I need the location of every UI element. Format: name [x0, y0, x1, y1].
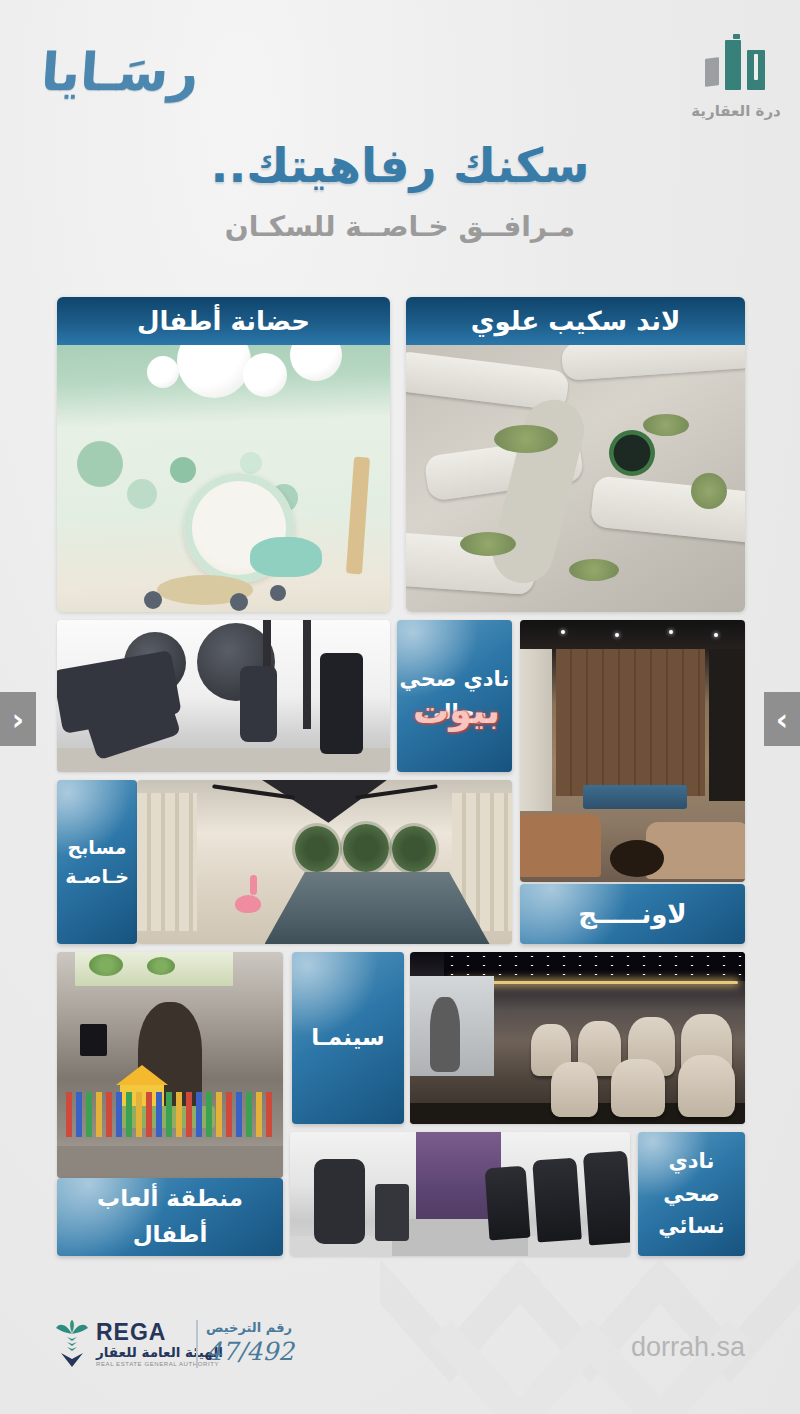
treadmill [532, 1158, 582, 1243]
lounge-label: لاونـــــج [520, 884, 745, 944]
cinema-photo [410, 952, 745, 1124]
treadmill [583, 1150, 630, 1245]
nursery-card: حضانة أطفال [57, 297, 390, 612]
weight-machine [314, 1159, 365, 1243]
pools-label: مسابح خـاصـة [57, 780, 137, 944]
lounge-sofa [520, 814, 601, 877]
dorrah-logo-icon [703, 34, 769, 96]
lounge-photo [520, 620, 745, 882]
page-subtitle: مـرافــق خـاصــة للسكـان [0, 210, 800, 243]
kids-play-photo [57, 952, 283, 1178]
wood-wall [556, 649, 705, 796]
pools-photo [137, 780, 512, 944]
carousel-next-button[interactable]: › [764, 692, 800, 746]
cinema-label: سينمـا [292, 952, 404, 1124]
wall-plant-wreath [295, 826, 339, 872]
weight-machine [240, 666, 277, 742]
recliner-seat [678, 1055, 735, 1117]
trampoline [609, 430, 655, 476]
bayut-watermark: بيوت [340, 690, 500, 738]
chevron-right-icon: › [776, 702, 788, 737]
recliner-seat [551, 1062, 598, 1117]
womens-club-label: نادي صحي نسائي [638, 1132, 745, 1256]
table-tennis-table [583, 785, 687, 809]
womens-gym-photo [290, 1132, 630, 1256]
rega-name-en: REGA [96, 1321, 223, 1344]
carousel-prev-button[interactable]: ‹ [0, 692, 36, 746]
wall-plant-wreath [392, 826, 436, 872]
background-chevron-pattern [380, 1240, 800, 1414]
play-fence [66, 1092, 274, 1137]
nursery-label: حضانة أطفال [57, 297, 390, 345]
flamingo-float [235, 895, 261, 913]
rasaya-logo: رسَـايا [35, 42, 200, 120]
kids-play-label: منطقة ألعاب أطفال [57, 1178, 283, 1256]
wall-tv [80, 1024, 107, 1056]
poster-canvas: رسَـايا درة العقارية سكنك رفاهيتك.. مـرا… [0, 0, 800, 1414]
landscape-label: لاند سكيب علوي [406, 297, 745, 345]
wall-plant-wreath [343, 824, 389, 872]
website-url: dorrah.sa [615, 1332, 745, 1363]
rega-name-ar: الهيئة العامة للعقار [96, 1346, 223, 1360]
license-label: رقم الترخيص [206, 1320, 292, 1335]
rega-subtitle-en: REAL ESTATE GENERAL AUTHORITY [96, 1361, 223, 1367]
footer-divider [196, 1320, 198, 1368]
landscape-photo [406, 345, 745, 612]
rega-palm-icon [55, 1320, 89, 1368]
dumbbell-rack [375, 1184, 409, 1241]
recliner-seat [611, 1059, 665, 1117]
treadmill [485, 1165, 531, 1240]
dorrah-logo-text: درة العقارية [690, 102, 782, 120]
dorrah-logo: درة العقارية [690, 34, 782, 126]
chevron-left-icon: ‹ [12, 702, 24, 737]
landscape-card: لاند سكيب علوي [406, 297, 745, 612]
license-block: رقم الترخيص 47/492 [206, 1320, 292, 1366]
page-title: سكنك رفاهيتك.. [0, 138, 800, 193]
nursery-photo [57, 345, 390, 612]
license-number: 47/492 [206, 1337, 292, 1366]
